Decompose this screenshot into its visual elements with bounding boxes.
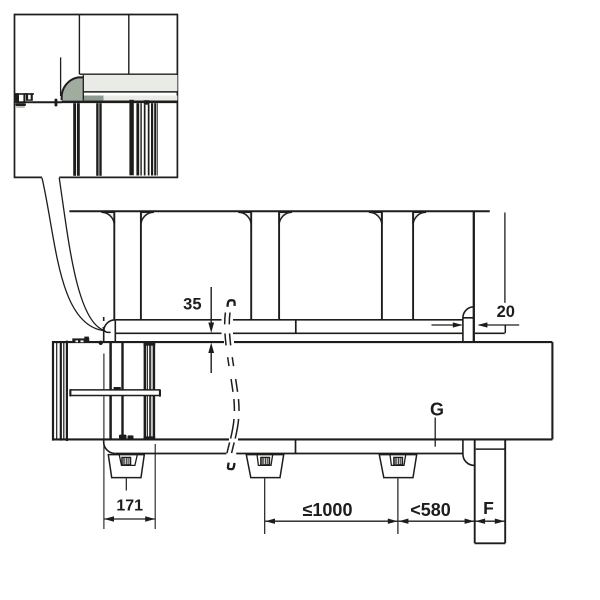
svg-text:G: G bbox=[430, 399, 444, 419]
svg-text:20: 20 bbox=[497, 303, 515, 321]
svg-text:F: F bbox=[483, 498, 494, 518]
svg-text:≤1000: ≤1000 bbox=[303, 500, 353, 520]
svg-text:171: 171 bbox=[116, 498, 143, 515]
svg-text:35: 35 bbox=[183, 296, 201, 314]
svg-text:<580: <580 bbox=[410, 500, 451, 520]
